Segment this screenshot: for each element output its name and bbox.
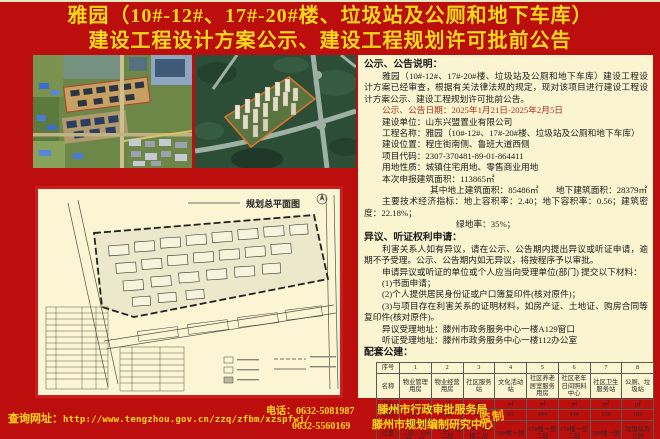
- cell-area: 444: [558, 410, 590, 421]
- objection-address-1: 异议受理地址：滕州市政务服务中心一楼A129窗口: [364, 324, 648, 335]
- field-indicators: 主要技术经济指标：地上容积率：2.40；地下容积率：0.56；建筑密度：22.1…: [364, 196, 648, 219]
- project-rendering: [195, 55, 356, 168]
- top-edge-strip: [0, 0, 660, 2]
- facilities-row-name: 名称 物业管理用房 物业经营用房 社区服务站 文化活动站 社区养老居室服务用房 …: [377, 373, 654, 399]
- agency-block: 滕州市行政审批服务局 滕州市规划编制研究中心: [372, 403, 493, 433]
- phone-number-2: 0632-5560169: [266, 419, 354, 434]
- cell-location: 17#楼一层二层: [558, 420, 590, 439]
- query-url-label: 查询网址：: [8, 413, 63, 425]
- cell-name: 社区老年日间照料中心: [558, 373, 590, 399]
- north-arrow-icon: [317, 193, 327, 204]
- agency-line-1: 滕州市行政审批服务局: [372, 403, 493, 418]
- cell-area: 444: [527, 410, 559, 421]
- cell-unit: ㎡: [622, 399, 654, 410]
- field-green-rate: 绿地率：35%；: [364, 219, 648, 230]
- site-plan-title: 规划总平面图: [246, 198, 300, 209]
- aerial-photo: [33, 55, 192, 168]
- plan-legend: [224, 356, 336, 383]
- phone-label: 电话：: [266, 406, 296, 417]
- cell-area: 158: [590, 410, 622, 421]
- cell-no: 4: [495, 363, 527, 374]
- facilities-heading: 配套公建：: [364, 346, 648, 359]
- announcement-panel: 公示、公告说明： 雅园（10#-12#、17#-20#楼、垃圾站及公厕和地下车库…: [358, 55, 653, 398]
- objection-heading: 异议、听证权利申请：: [364, 231, 648, 244]
- cell-location: 垃圾站及公厕: [622, 420, 654, 439]
- field-location: 建设位置：程庄街南侧、鲁班大道西侧: [364, 139, 648, 150]
- facilities-row-no: 序号 1 2 3 4 5 6 7 8: [377, 363, 654, 374]
- cell-name: 社区养老居室服务用房: [527, 373, 559, 399]
- field-project-code: 项目代码：2307-370481-89-01-864411: [364, 151, 648, 162]
- cell-name: 社区卫生服务站: [590, 373, 622, 399]
- plan-data-table-1: [46, 307, 108, 389]
- notice-heading: 公示、公告说明：: [364, 58, 648, 71]
- cell-no: 2: [431, 363, 463, 374]
- cell-name: 物业经营用房: [431, 373, 463, 399]
- field-land-use: 用地性质：城镇住宅用地、零售商业用地: [364, 162, 648, 173]
- row-label: 序号: [377, 363, 400, 374]
- cell-location: 18#楼一层: [590, 420, 622, 439]
- cell-no: 8: [622, 363, 654, 374]
- objection-address-2: 听证受理地址：滕州市政务服务中心一楼112办公室: [364, 335, 648, 346]
- agency-line-2: 滕州市规划编制研究中心: [372, 418, 493, 433]
- cell-unit: ㎡: [558, 399, 590, 410]
- field-total-area: 本次申报建筑面积：113865㎡: [364, 174, 648, 185]
- cell-name: 物业管理用房: [400, 373, 432, 399]
- poster-title: 雅园（10#-12#、17#-20#楼、垃圾站及公厕和地下车库） 建设工程设计方…: [0, 4, 660, 54]
- cell-name: 社区服务站: [463, 373, 495, 399]
- cell-no: 1: [400, 363, 432, 374]
- site-plan-panel: 规划总平面图: [35, 186, 343, 398]
- row-label: 名称: [377, 373, 400, 399]
- query-url-line: 查询网址：http://www.tengzhou.gov.cn/zzq/zfbm…: [8, 409, 310, 427]
- cell-name: 公厕、垃圾站: [622, 373, 654, 399]
- objection-item-3: (3)与项目存在利害关系的证明材料，如房产证、土地证、购房合同等复印件(核对原件…: [364, 301, 648, 324]
- rendering-graphic: [195, 55, 356, 168]
- cell-unit: ㎡: [527, 399, 559, 410]
- cell-no: 5: [527, 363, 559, 374]
- objection-para2: 申请异议或听证的单位或个人应当向受理单位(部门) 提交以下材料：: [364, 267, 648, 278]
- cell-no: 7: [590, 363, 622, 374]
- plan-data-table-2: [120, 347, 184, 391]
- site-plan-graphic: 规划总平面图: [38, 189, 340, 395]
- cell-location: 17#楼一层二层: [527, 420, 559, 439]
- notice-date-line: 公示、公告日期：2025年1月21日-2025年2月5日: [364, 105, 648, 116]
- phone-block: 电话：0632-5081987 0632-5560169: [266, 404, 354, 434]
- cell-area: 183: [622, 410, 654, 421]
- cell-name: 文化活动站: [495, 373, 527, 399]
- field-project-name: 工程名称：雅园（10#-12#、17#-20#楼、垃圾站及公厕和地下车库）: [364, 128, 648, 139]
- cell-no: 6: [558, 363, 590, 374]
- poster-title-line1: 雅园（10#-12#、17#-20#楼、垃圾站及公厕和地下车库）: [0, 4, 660, 29]
- field-construction-unit: 建设单位：山东兴盟置业有限公司: [364, 117, 648, 128]
- phone-line-1: 电话：0632-5081987: [266, 404, 354, 419]
- objection-item-2: (2)个人提供居民身份证或户口簿复印件(核对原件)；: [364, 289, 648, 300]
- cell-no: 3: [463, 363, 495, 374]
- field-sub-area: 其中地上建筑面积：85486㎡ 地下建筑面积：28379㎡: [364, 185, 648, 196]
- objection-para1: 利害关系人如有异议，请在公示、公告期内提出异议或听证申请，逾期不予受理。公示、公…: [364, 244, 648, 267]
- cell-unit: ㎡: [590, 399, 622, 410]
- aerial-photo-graphic: [33, 55, 192, 168]
- notice-intro: 雅园（10#-12#、17#-20#楼、垃圾站及公厕和地下车库）建设工程设计方案…: [364, 71, 648, 105]
- objection-item-1: (1)书面申请；: [364, 278, 648, 289]
- poster-title-line2: 建设工程设计方案公示、建设工程规划许可批前公告: [0, 29, 660, 54]
- phone-number-1: 0632-5081987: [296, 406, 354, 417]
- notice-poster: 雅园（10#-12#、17#-20#楼、垃圾站及公厕和地下车库） 建设工程设计方…: [0, 0, 660, 439]
